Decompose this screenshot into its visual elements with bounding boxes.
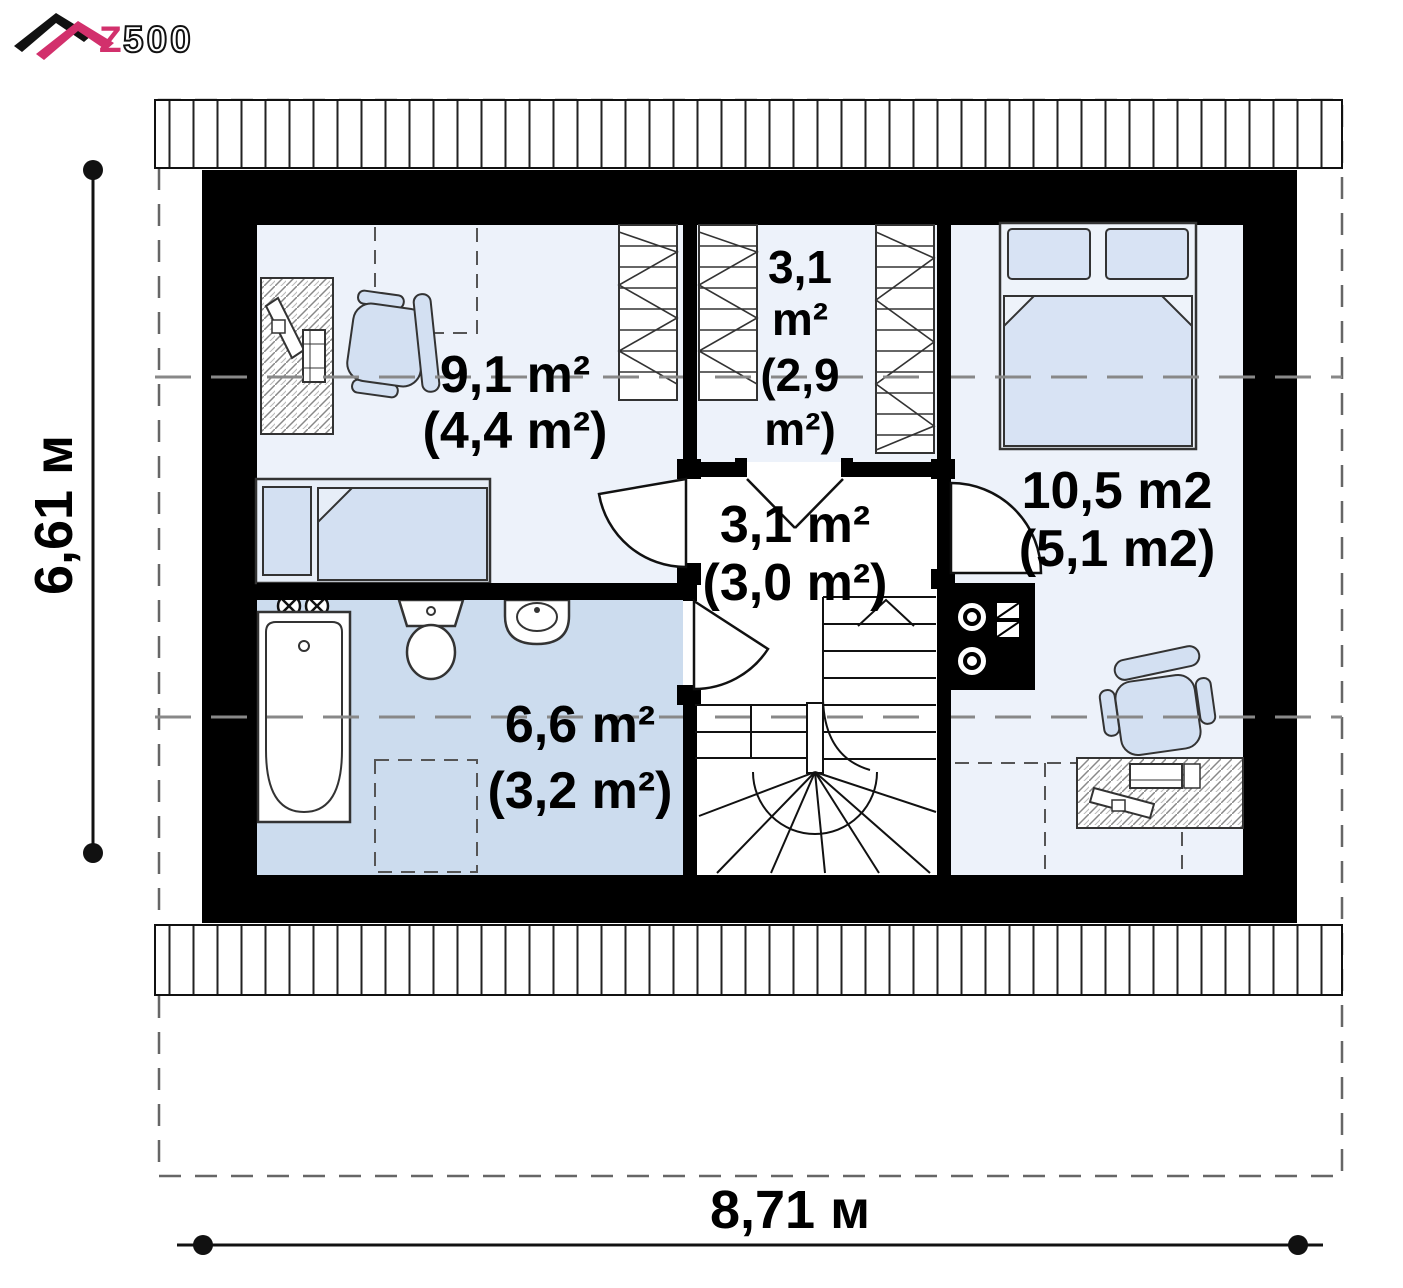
roof-eaves-band-top [155,100,1342,168]
roof-eaves-band-bottom [155,925,1342,995]
hall-attic-area-label: (3,0 m²) [703,554,888,612]
wardrobe-unit-left-icon [699,225,757,400]
desk-icon [261,278,333,434]
width-dimension-label: 8,71 м [710,1180,870,1240]
pillow-icon [1106,229,1188,279]
bathroom-attic-area-label: (3,2 m²) [488,762,673,820]
wardrobe-area-label-line3: (2,9 [760,349,839,401]
dimension-height: 6,61 м [24,160,103,863]
hall-area-label: 3,1 m² [720,496,870,554]
closet-icon [619,225,677,400]
bedroom-attic-area-label: (5,1 m2) [1019,520,1216,578]
single-bed-icon [256,479,490,583]
logo-text-z: Z [99,19,123,60]
keyboard-icon [303,330,325,382]
chimney-block-icon [948,583,1035,690]
double-bed-icon [1000,223,1196,449]
wardrobe-area-label-line1: 3,1 [768,241,832,293]
blanket-icon [1004,296,1192,446]
wardrobe-area-label-line2: m² [772,293,828,345]
wardrobe-area-label-line4: m²) [764,403,836,455]
keyboard-icon [1130,764,1182,788]
desk-icon [1077,758,1243,828]
blanket-icon [318,488,487,580]
wardrobe-unit-right-icon [876,225,934,453]
bedroom-area-label: 10,5 m2 [1022,462,1213,520]
floor-plan-drawing: 6,61 м 8,71 м 9,1 m² (4,4 m²) 3,1 m² (2,… [0,0,1403,1288]
floor-plan-page: 6,61 м 8,71 м 9,1 m² (4,4 m²) 3,1 m² (2,… [0,0,1403,1288]
child-room-attic-area-label: (4,4 m²) [423,402,608,460]
child-room-area-label: 9,1 m² [440,346,590,404]
pillow-icon [1008,229,1090,279]
dimension-width: 8,71 м [177,1180,1323,1255]
bathroom-area-label: 6,6 m² [505,696,655,754]
z500-logo: Z 500 [14,13,194,60]
logo-text-500: 500 [123,19,194,60]
pillow-icon [263,487,311,575]
sink-icon [505,600,569,644]
height-dimension-label: 6,61 м [24,435,84,595]
